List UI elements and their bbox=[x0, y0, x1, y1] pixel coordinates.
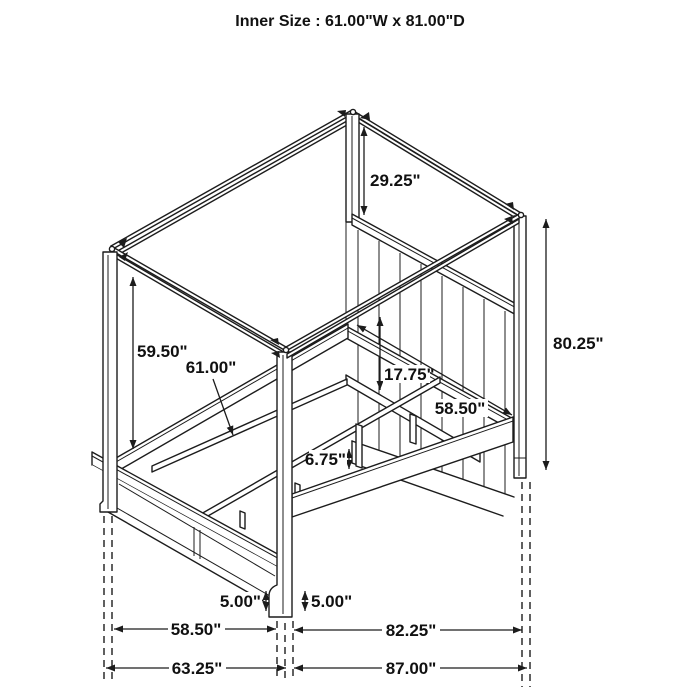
dimension-label-foot-height-right: 5.00" bbox=[311, 592, 352, 611]
dimension-58-50-footboard: 58.50" bbox=[114, 619, 276, 639]
head-right-post bbox=[514, 216, 526, 478]
dimension-label-siderail-length: 82.25" bbox=[386, 621, 437, 640]
dimension-63-25: 63.25" bbox=[106, 658, 286, 678]
dimension-label-foot-height-left: 5.00" bbox=[220, 592, 261, 611]
foot-left-post bbox=[100, 252, 117, 512]
dimension-82-25: 82.25" bbox=[294, 620, 522, 640]
dimension-label-post-height: 80.25" bbox=[553, 334, 604, 353]
bed-dimension-diagram: 29.25" 80.25" 59.50" 61.00" 17.75" 58.50… bbox=[0, 0, 700, 700]
dimension-label-canopy-to-headboard: 29.25" bbox=[370, 171, 421, 190]
dimension-label-overall-width: 63.25" bbox=[172, 659, 223, 678]
dimension-label-footboard-width: 58.50" bbox=[171, 620, 222, 639]
diagram-canvas: 29.25" 80.25" 59.50" 61.00" 17.75" 58.50… bbox=[0, 0, 700, 700]
dimension-label-headboard-panel-height: 17.75" bbox=[384, 365, 435, 384]
dimension-label-canopy-to-siderail: 59.50" bbox=[137, 342, 188, 361]
dimension-label-slat-leg-height: 6.75" bbox=[305, 450, 346, 469]
dimension-label-frame-width: 58.50" bbox=[435, 399, 486, 418]
footboard bbox=[92, 452, 284, 613]
dimension-80-25: 80.25" bbox=[546, 219, 604, 470]
dimension-5-00-left: 5.00" bbox=[219, 591, 266, 611]
dimension-label-inner-width: 61.00" bbox=[186, 358, 237, 377]
dimension-87-00: 87.00" bbox=[294, 658, 527, 678]
dimension-5-00-right: 5.00" bbox=[305, 591, 353, 611]
inner-size-title: Inner Size : 61.00"W x 81.00"D bbox=[235, 13, 465, 30]
dimension-label-overall-depth: 87.00" bbox=[386, 659, 437, 678]
dimension-6-75: 6.75" bbox=[305, 449, 349, 469]
